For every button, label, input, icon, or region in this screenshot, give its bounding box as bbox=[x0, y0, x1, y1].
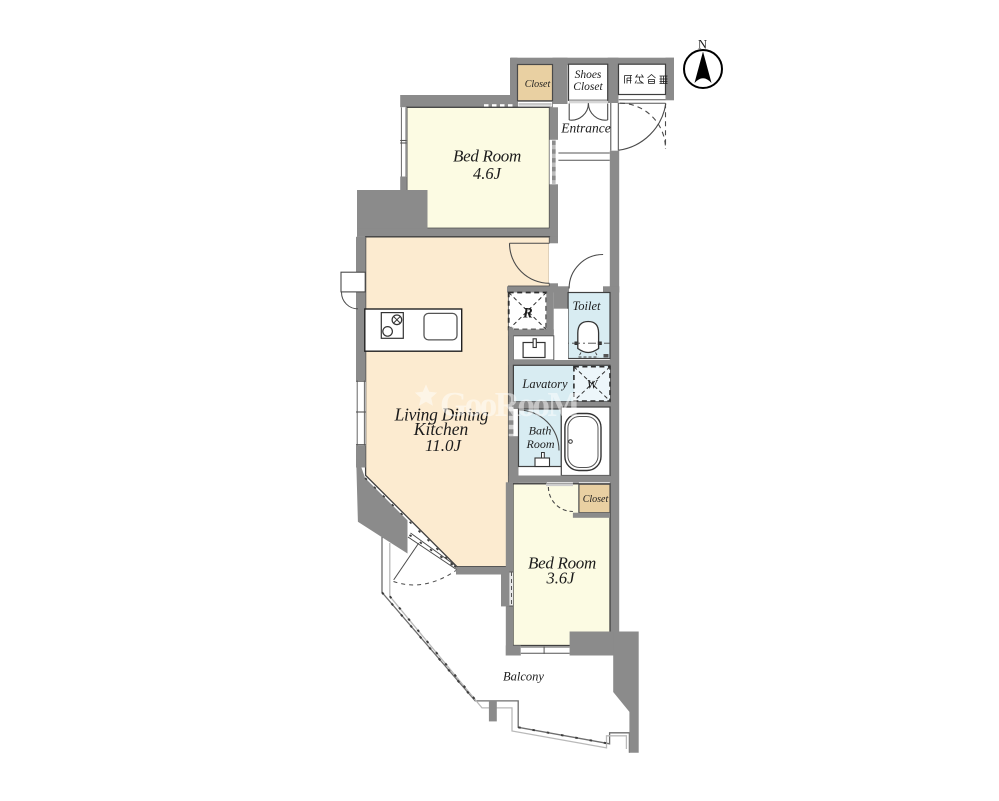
svg-text:3.6J: 3.6J bbox=[546, 569, 576, 588]
svg-text:Closet: Closet bbox=[573, 81, 603, 93]
svg-text:Room: Room bbox=[526, 437, 555, 451]
svg-text:Toilet: Toilet bbox=[572, 299, 601, 313]
svg-text:4.6J: 4.6J bbox=[473, 164, 502, 183]
svg-text:Entrance: Entrance bbox=[560, 121, 611, 136]
svg-text:W: W bbox=[587, 378, 599, 392]
svg-text:Shoes: Shoes bbox=[575, 69, 602, 81]
svg-text:GooRooM: GooRooM bbox=[440, 385, 581, 424]
svg-text:Balcony: Balcony bbox=[503, 670, 544, 684]
svg-text:R: R bbox=[522, 306, 533, 322]
svg-text:Closet: Closet bbox=[583, 494, 609, 505]
svg-text:Bath: Bath bbox=[529, 423, 552, 437]
svg-text:Closet: Closet bbox=[525, 79, 551, 90]
svg-text:Bed Room: Bed Room bbox=[453, 147, 521, 166]
svg-text:11.0J: 11.0J bbox=[425, 436, 462, 455]
